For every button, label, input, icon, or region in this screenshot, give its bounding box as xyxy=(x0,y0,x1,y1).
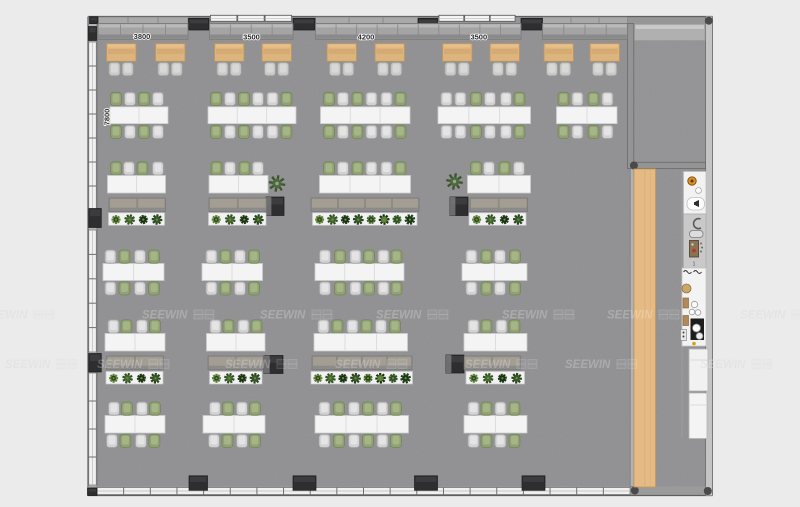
svg-text:SEEWIN: SEEWIN xyxy=(335,359,381,371)
svg-text:SEEWIN: SEEWIN xyxy=(5,359,51,371)
svg-text:SEEWIN: SEEWIN xyxy=(700,359,746,371)
svg-text:3800: 3800 xyxy=(134,32,151,41)
svg-text:SEEWIN: SEEWIN xyxy=(465,359,511,371)
svg-text:SEEWIN: SEEWIN xyxy=(565,359,611,371)
svg-text:4200: 4200 xyxy=(358,32,375,41)
svg-text:SEEWIN: SEEWIN xyxy=(97,359,143,371)
svg-text:SEEWIN: SEEWIN xyxy=(260,310,306,322)
svg-text:SEEWIN: SEEWIN xyxy=(225,359,271,371)
svg-text:3500: 3500 xyxy=(243,32,260,41)
svg-text:SEEWIN: SEEWIN xyxy=(502,310,548,322)
svg-text:SEEWIN: SEEWIN xyxy=(740,310,786,322)
svg-text:3500: 3500 xyxy=(470,32,487,41)
svg-text:7800: 7800 xyxy=(102,109,111,126)
svg-text:1: 1 xyxy=(693,262,696,268)
svg-text:SEEWIN: SEEWIN xyxy=(0,310,28,322)
svg-text:SEEWIN: SEEWIN xyxy=(142,310,188,322)
svg-text:SEEWIN: SEEWIN xyxy=(607,310,653,322)
svg-text:SEEWIN: SEEWIN xyxy=(376,310,422,322)
